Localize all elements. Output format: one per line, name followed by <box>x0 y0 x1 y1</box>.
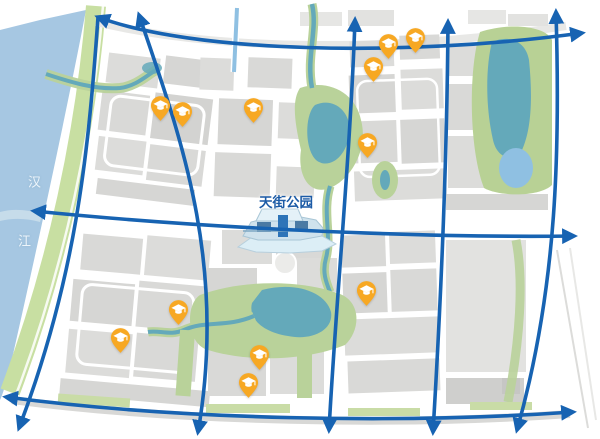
school-pin[interactable] <box>356 280 377 307</box>
graduation-cap-icon <box>356 280 377 307</box>
school-pin[interactable] <box>249 344 270 371</box>
river-name-char: 汉 <box>28 172 42 191</box>
school-pin[interactable] <box>405 27 426 54</box>
graduation-cap-icon <box>405 27 426 54</box>
graduation-cap-icon <box>150 95 171 122</box>
school-pin[interactable] <box>243 97 264 124</box>
park-name-label: 天街公园 <box>259 191 313 211</box>
city-map-canvas <box>0 0 600 439</box>
school-pin[interactable] <box>110 327 131 354</box>
school-pin[interactable] <box>357 132 378 159</box>
school-pin[interactable] <box>172 101 193 128</box>
graduation-cap-icon <box>110 327 131 354</box>
graduation-cap-icon <box>172 101 193 128</box>
river-name-char: 江 <box>18 231 32 250</box>
school-pin[interactable] <box>168 299 189 326</box>
school-pin[interactable] <box>238 372 259 399</box>
graduation-cap-icon <box>357 132 378 159</box>
graduation-cap-icon <box>363 56 384 83</box>
graduation-cap-icon <box>238 372 259 399</box>
graduation-cap-icon <box>168 299 189 326</box>
school-pin[interactable] <box>378 33 399 60</box>
graduation-cap-icon <box>378 33 399 60</box>
school-pin[interactable] <box>150 95 171 122</box>
urban-planning-map: 汉江 天街公园 <box>0 0 600 439</box>
graduation-cap-icon <box>249 344 270 371</box>
school-pin[interactable] <box>363 56 384 83</box>
graduation-cap-icon <box>243 97 264 124</box>
